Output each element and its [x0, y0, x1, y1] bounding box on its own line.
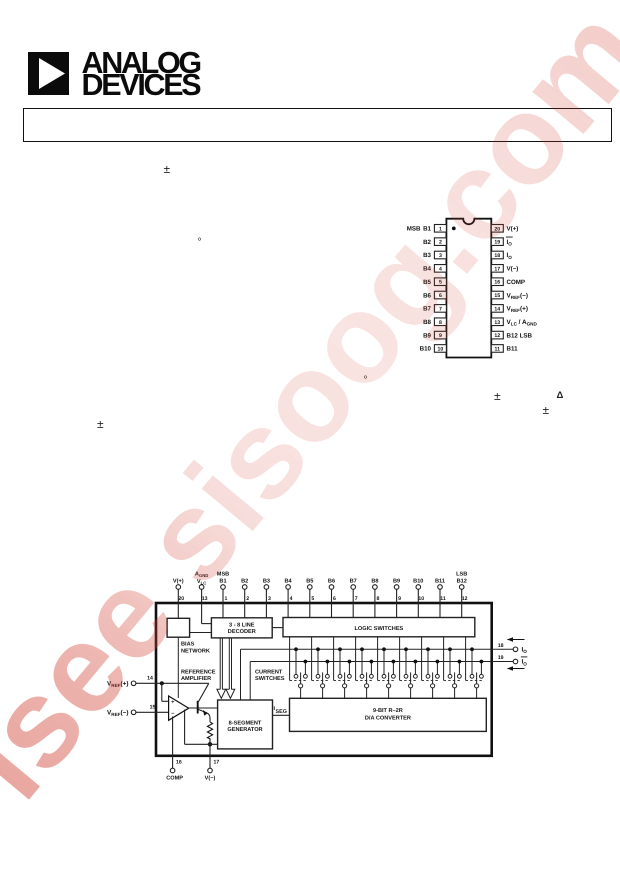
svg-text:VREF(+): VREF(+): [507, 306, 528, 314]
svg-text:AGND: AGND: [195, 572, 208, 578]
svg-text:19: 19: [494, 240, 500, 246]
svg-text:3: 3: [439, 253, 442, 259]
svg-text:DECODER: DECODER: [228, 629, 256, 635]
svg-text:14: 14: [147, 676, 153, 682]
svg-text:IO: IO: [507, 239, 513, 247]
svg-text:20: 20: [178, 596, 184, 602]
svg-text:B9: B9: [393, 579, 400, 585]
svg-text:18: 18: [498, 643, 504, 649]
svg-text:VREF(+): VREF(+): [107, 681, 128, 689]
svg-text:14: 14: [494, 306, 500, 312]
svg-text:B12: B12: [457, 579, 467, 585]
svg-text:12: 12: [462, 596, 468, 602]
svg-text:B4: B4: [285, 579, 293, 585]
svg-text:REFERENCE: REFERENCE: [181, 669, 216, 675]
svg-text:8: 8: [376, 596, 379, 602]
svg-text:IO: IO: [522, 647, 528, 655]
svg-text:B5: B5: [423, 279, 431, 286]
svg-text:5: 5: [311, 596, 314, 602]
svg-text:2: 2: [246, 596, 249, 602]
svg-text:7: 7: [439, 306, 442, 312]
svg-text:MSB: MSB: [407, 226, 421, 233]
svg-text:12: 12: [494, 333, 500, 339]
svg-text:+: +: [171, 700, 174, 706]
svg-text:16: 16: [494, 280, 500, 286]
svg-text:B7: B7: [423, 306, 431, 313]
svg-text:9: 9: [398, 596, 401, 602]
svg-text:8: 8: [439, 320, 442, 326]
svg-text:V(−): V(−): [507, 266, 519, 273]
svg-text:NETWORK: NETWORK: [181, 648, 210, 654]
svg-text:B2: B2: [423, 239, 431, 246]
svg-text:CURRENT: CURRENT: [255, 669, 283, 675]
svg-text:B2: B2: [241, 579, 248, 585]
svg-text:6: 6: [333, 596, 336, 602]
svg-text:13: 13: [494, 320, 500, 326]
svg-text:7: 7: [355, 596, 358, 602]
svg-text:6: 6: [439, 293, 442, 299]
svg-text:10: 10: [418, 596, 424, 602]
svg-text:16: 16: [176, 760, 182, 766]
svg-text:COMP: COMP: [507, 279, 526, 286]
svg-text:GENERATOR: GENERATOR: [227, 727, 262, 733]
svg-text:13: 13: [202, 596, 208, 602]
svg-text:B3: B3: [263, 579, 270, 585]
svg-text:17: 17: [214, 760, 220, 766]
svg-text:4: 4: [290, 596, 293, 602]
svg-text:B7: B7: [350, 579, 357, 585]
svg-text:V(−): V(−): [205, 775, 216, 782]
svg-text:18: 18: [494, 253, 500, 259]
svg-text:17: 17: [494, 266, 500, 272]
svg-text:20: 20: [494, 226, 500, 232]
svg-text:B1: B1: [423, 226, 431, 233]
svg-text:V(+): V(+): [173, 578, 184, 585]
svg-text:B4: B4: [423, 266, 431, 273]
svg-text:B3: B3: [423, 252, 431, 259]
svg-text:LOGIC SWITCHES: LOGIC SWITCHES: [355, 626, 404, 632]
svg-text:B6: B6: [423, 292, 431, 299]
svg-text:LSB: LSB: [456, 572, 467, 578]
svg-text:B10: B10: [420, 346, 432, 353]
svg-text:AMPLIFIER: AMPLIFIER: [181, 676, 211, 682]
svg-text:8-SEGMENT: 8-SEGMENT: [229, 720, 262, 726]
svg-text:B12 LSB: B12 LSB: [507, 332, 533, 339]
svg-text:B8: B8: [371, 579, 378, 585]
svg-text:B8: B8: [423, 319, 431, 326]
svg-text:VLC / AGND: VLC / AGND: [507, 319, 538, 327]
svg-text:19: 19: [498, 655, 504, 661]
svg-text:B5: B5: [306, 579, 313, 585]
svg-text:VLC: VLC: [197, 579, 206, 585]
svg-text:BIAS: BIAS: [181, 642, 195, 648]
svg-text:VREF(−): VREF(−): [107, 710, 128, 718]
svg-text:1: 1: [439, 226, 442, 232]
svg-text:SWITCHES: SWITCHES: [255, 676, 285, 682]
svg-text:10: 10: [438, 346, 444, 352]
svg-text:2: 2: [439, 240, 442, 246]
svg-text:B6: B6: [328, 579, 335, 585]
svg-text:3 - 8 LINE: 3 - 8 LINE: [229, 622, 255, 628]
svg-text:B11: B11: [507, 346, 519, 353]
svg-text:COMP: COMP: [166, 776, 183, 782]
svg-text:SEG: SEG: [276, 709, 287, 715]
svg-text:15: 15: [150, 705, 156, 711]
svg-text:11: 11: [440, 596, 446, 602]
svg-text:15: 15: [494, 293, 500, 299]
svg-text:9-BIT R–2R: 9-BIT R–2R: [373, 708, 403, 714]
svg-text:B11: B11: [435, 579, 445, 585]
svg-text:V(+): V(+): [507, 226, 519, 233]
svg-text:D/A CONVERTER: D/A CONVERTER: [365, 715, 411, 722]
svg-text:1: 1: [225, 596, 228, 602]
svg-text:4: 4: [439, 266, 442, 272]
svg-text:5: 5: [439, 280, 442, 286]
svg-text:−: −: [171, 711, 174, 717]
svg-text:9: 9: [439, 333, 442, 339]
svg-text:MSB: MSB: [217, 572, 229, 578]
svg-text:11: 11: [495, 346, 501, 352]
svg-text:B10: B10: [413, 579, 423, 585]
svg-text:B9: B9: [423, 332, 431, 339]
svg-text:VREF(−): VREF(−): [507, 292, 528, 300]
svg-text:B1: B1: [219, 579, 226, 585]
svg-text:3: 3: [268, 596, 271, 602]
svg-text:IO: IO: [507, 252, 513, 260]
svg-text:IO: IO: [522, 659, 528, 667]
